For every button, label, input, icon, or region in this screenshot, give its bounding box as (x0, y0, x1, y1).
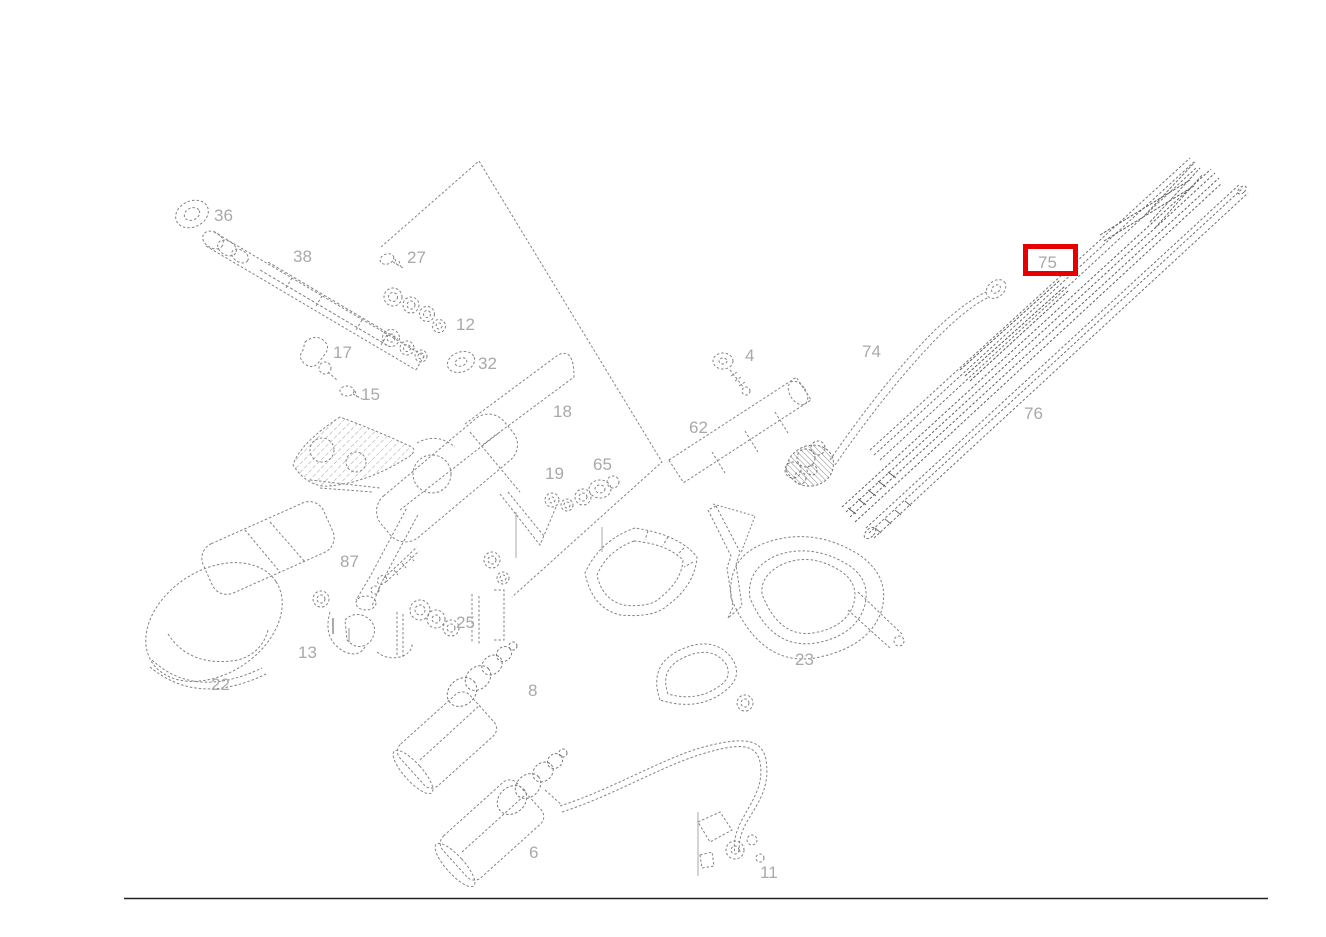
svg-text:17: 17 (333, 343, 352, 362)
svg-text:25: 25 (456, 613, 475, 632)
svg-text:87: 87 (340, 552, 359, 571)
svg-text:76: 76 (1024, 404, 1043, 423)
svg-text:18: 18 (553, 402, 572, 421)
svg-text:62: 62 (689, 418, 708, 437)
svg-text:27: 27 (407, 248, 426, 267)
svg-text:75: 75 (1038, 253, 1057, 272)
svg-text:36: 36 (214, 206, 233, 225)
svg-text:8: 8 (528, 681, 537, 700)
svg-text:38: 38 (293, 247, 312, 266)
svg-text:12: 12 (456, 315, 475, 334)
svg-text:13: 13 (298, 643, 317, 662)
svg-text:15: 15 (361, 385, 380, 404)
svg-text:19: 19 (545, 464, 564, 483)
svg-text:22: 22 (211, 675, 230, 694)
svg-text:74: 74 (862, 342, 881, 361)
svg-text:11: 11 (760, 863, 778, 882)
svg-text:65: 65 (593, 455, 612, 474)
svg-text:6: 6 (529, 843, 538, 862)
svg-text:4: 4 (745, 346, 754, 365)
svg-text:23: 23 (795, 650, 814, 669)
svg-text:32: 32 (478, 354, 497, 373)
